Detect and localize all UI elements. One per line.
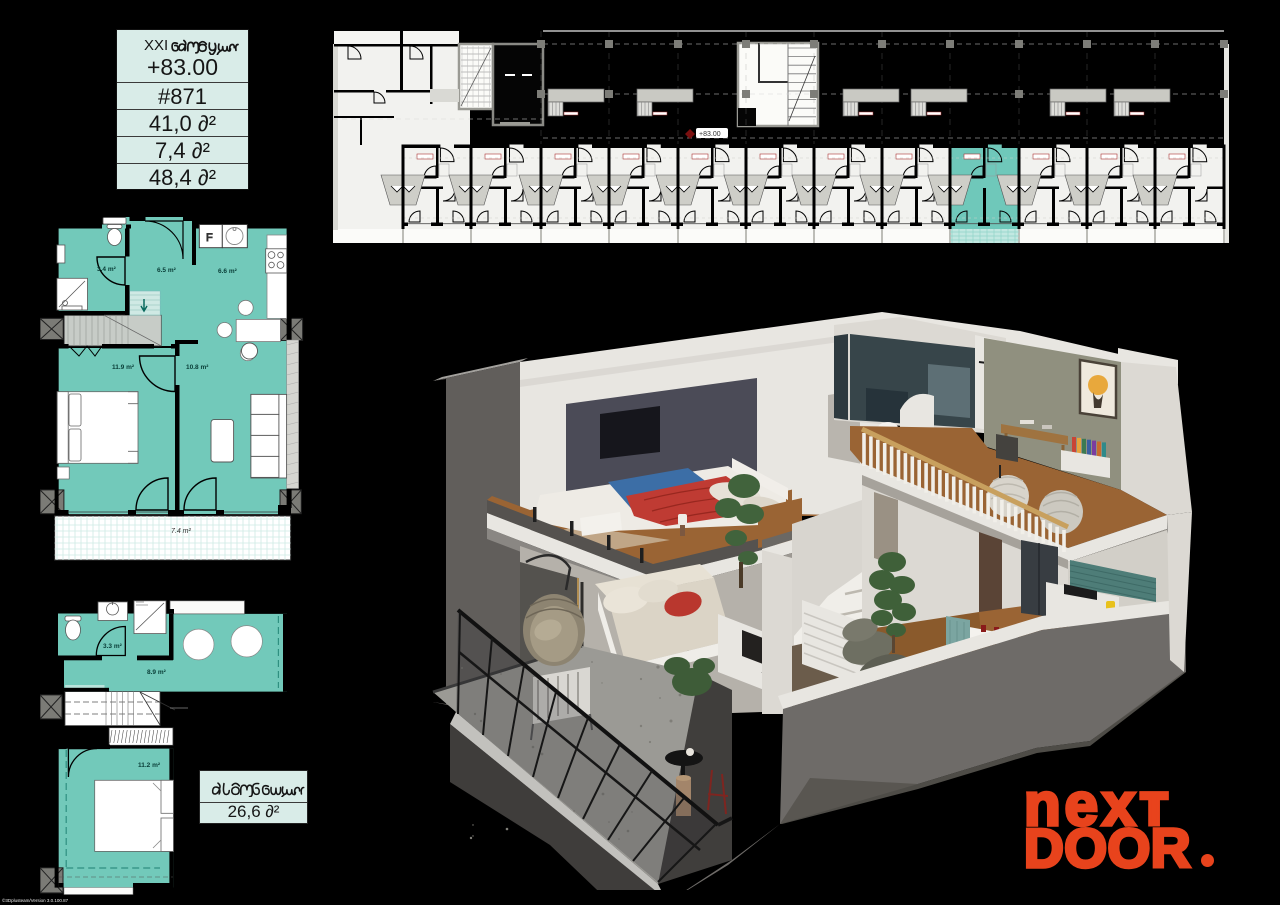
svg-text:3.4 m²: 3.4 m²: [97, 266, 117, 273]
svg-text:8.9 m²: 8.9 m²: [147, 669, 167, 676]
svg-text:6.5 m²: 6.5 m²: [157, 267, 177, 274]
svg-text:+83.00: +83.00: [699, 131, 721, 138]
svg-text:10.8 m²: 10.8 m²: [186, 364, 209, 371]
svg-text:F: F: [206, 232, 213, 244]
svg-text:11.2 m²: 11.2 m²: [138, 762, 161, 769]
svg-text:11.9 m²: 11.9 m²: [112, 364, 135, 371]
svg-text:6.6 m²: 6.6 m²: [218, 268, 238, 275]
svg-text:7.4 m²: 7.4 m²: [171, 528, 192, 535]
svg-text:XXI: XXI: [144, 37, 168, 54]
svg-text:3.3 m²: 3.3 m²: [103, 643, 123, 650]
